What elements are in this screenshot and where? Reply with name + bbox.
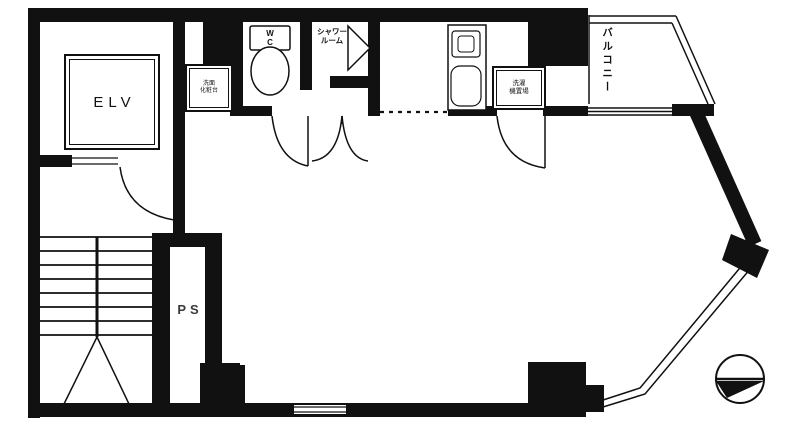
ps-right-wall bbox=[205, 233, 222, 365]
kitchen-counter bbox=[448, 25, 486, 110]
bottom-right-pier-step bbox=[586, 385, 604, 412]
top-wall bbox=[28, 8, 588, 22]
north-compass-icon bbox=[716, 355, 764, 403]
hall-right-wall bbox=[173, 8, 185, 237]
shower-room-label: シャワールーム bbox=[311, 28, 353, 45]
elevator-shaft: ELV bbox=[64, 54, 160, 150]
kitchen-top-block bbox=[528, 20, 588, 66]
pipe-space-label: PS bbox=[168, 303, 212, 318]
staircase bbox=[40, 237, 152, 404]
wc-door bbox=[272, 116, 308, 166]
washstand-fixture: 洗面 化粧台 bbox=[185, 64, 233, 112]
left-wall bbox=[28, 8, 40, 418]
floor-plan: ELV 洗面 化粧台 洗濯 機置場 WC シャワールーム バルコニー PS bbox=[0, 0, 787, 441]
bottom-wall-window bbox=[294, 405, 346, 414]
balcony-diagonal-rail bbox=[672, 16, 715, 104]
laundry-space-fixture: 洗濯 機置場 bbox=[492, 66, 546, 110]
washstand-label: 洗面 化粧台 bbox=[189, 68, 229, 108]
wc-label: WC bbox=[258, 30, 282, 48]
elevator-shaft-inner: ELV bbox=[69, 59, 155, 145]
kitchen-door bbox=[497, 116, 545, 168]
entrance-door bbox=[120, 167, 174, 220]
duct-block bbox=[203, 22, 233, 66]
wc-left-wall bbox=[233, 22, 243, 112]
balcony-top-rail bbox=[589, 16, 676, 23]
diagonal-thick-wall bbox=[696, 112, 755, 244]
ps-bottom-pier bbox=[200, 363, 240, 403]
elv-room-bottom-wall bbox=[28, 155, 72, 167]
bottom-right-pier bbox=[528, 362, 586, 417]
shower-double-door bbox=[312, 116, 368, 161]
elv-room-window bbox=[72, 156, 118, 166]
balcony-label: バルコニー bbox=[601, 27, 613, 111]
shower-right-wall bbox=[368, 15, 380, 116]
wet-zone-bottom-wall bbox=[230, 106, 272, 116]
kitchen-right-bottom-wall bbox=[543, 106, 588, 116]
stove-burner-icon bbox=[458, 36, 474, 52]
stair-direction-arrow bbox=[64, 337, 129, 404]
ps-left-wall bbox=[152, 233, 170, 417]
laundry-space-label: 洗濯 機置場 bbox=[496, 70, 542, 106]
sink-icon bbox=[451, 66, 481, 106]
elevator-label: ELV bbox=[88, 94, 135, 111]
diagonal-wall-jog bbox=[722, 234, 769, 278]
shower-bottom-bar bbox=[330, 76, 368, 88]
